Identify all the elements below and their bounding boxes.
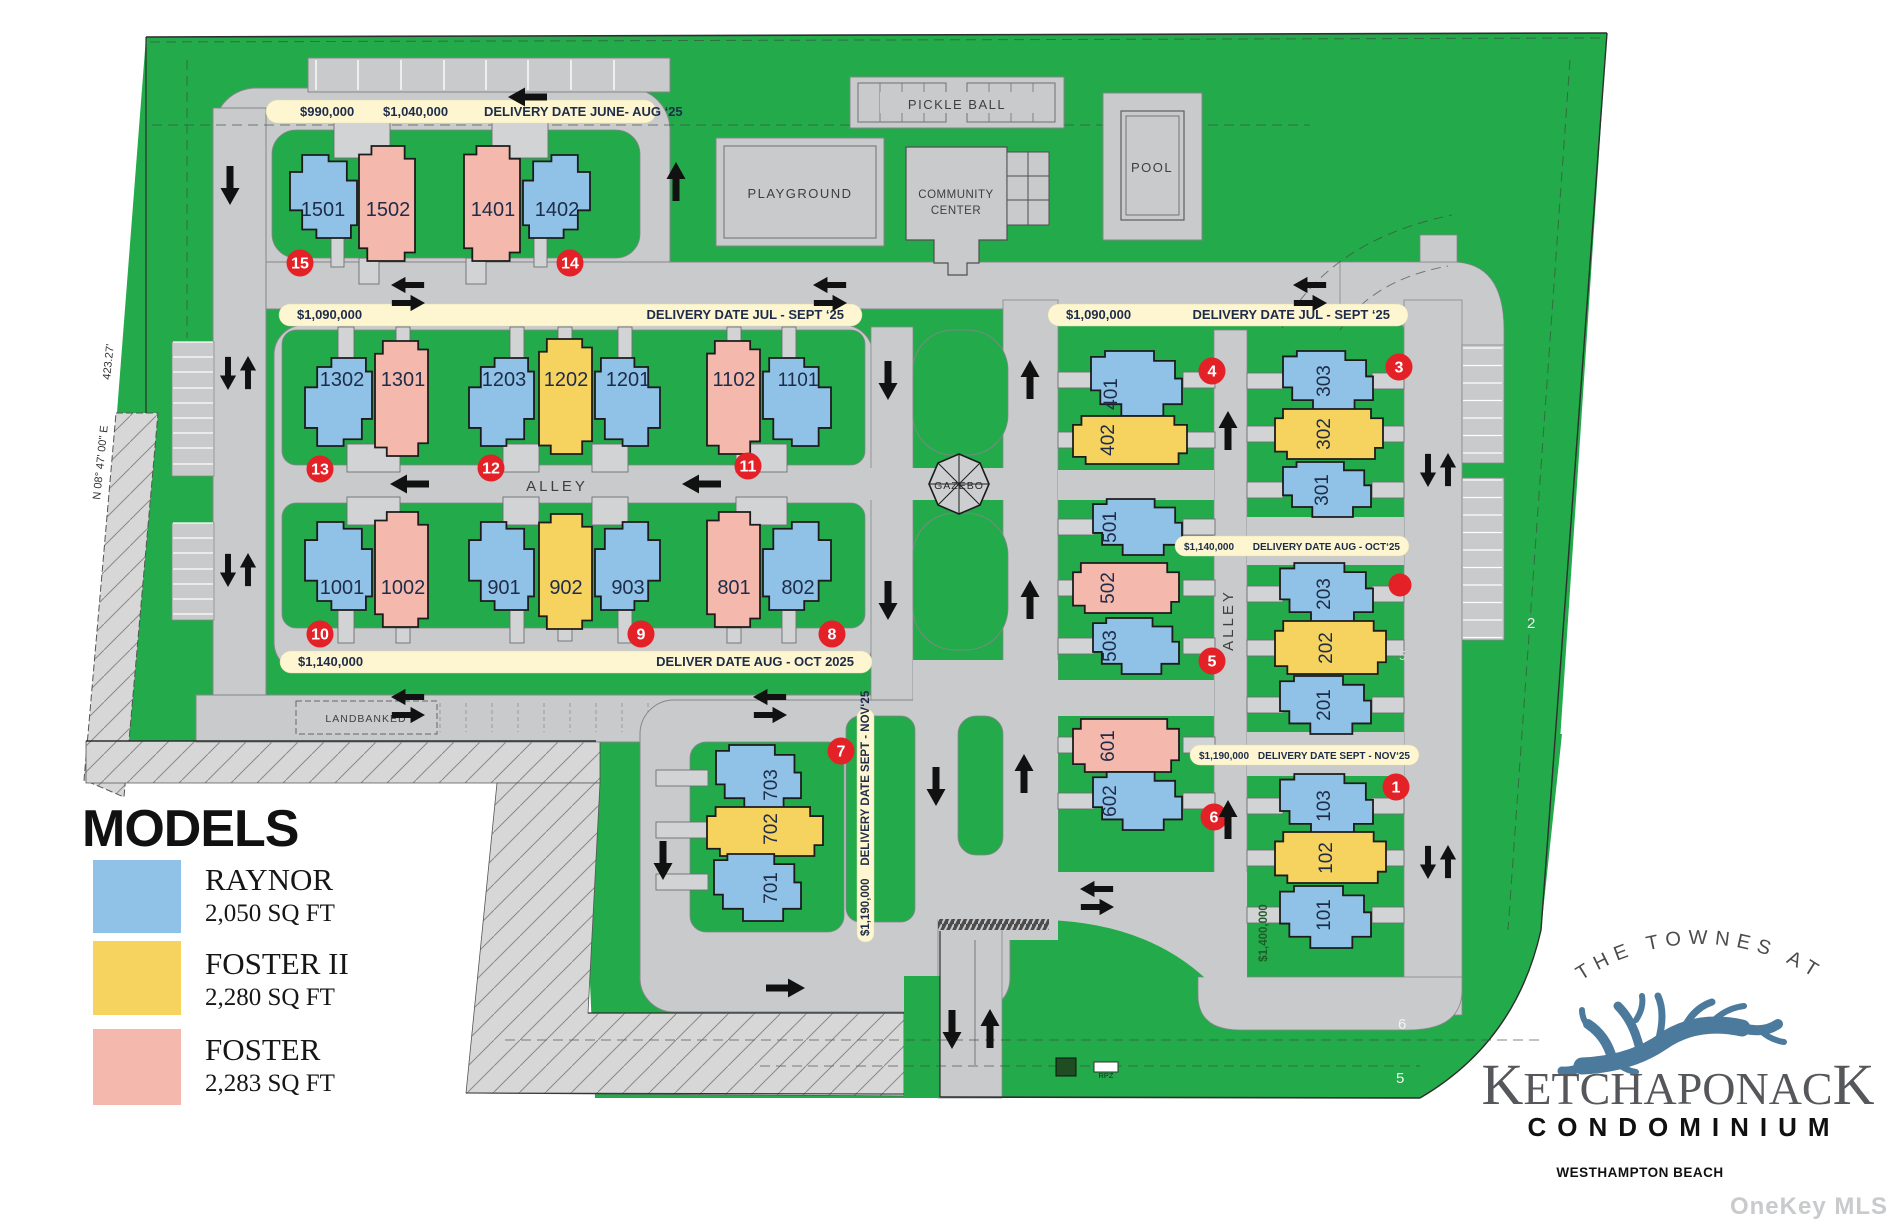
svg-text:RAYNOR: RAYNOR <box>205 862 333 897</box>
svg-text:POOL: POOL <box>1131 160 1173 175</box>
svg-text:302: 302 <box>1314 418 1335 450</box>
svg-text:WESTHAMPTON BEACH: WESTHAMPTON BEACH <box>1556 1165 1723 1180</box>
svg-text:9: 9 <box>637 627 646 644</box>
svg-text:502: 502 <box>1098 572 1119 604</box>
svg-text:$1,090,000: $1,090,000 <box>1066 307 1131 322</box>
svg-text:1202: 1202 <box>544 369 589 391</box>
svg-text:2,050 SQ FT: 2,050 SQ FT <box>205 900 335 927</box>
svg-text:1401: 1401 <box>471 199 516 221</box>
svg-text:$1,140,000: $1,140,000 <box>298 654 363 669</box>
svg-text:1001: 1001 <box>320 577 365 599</box>
svg-text:5: 5 <box>1396 1070 1404 1087</box>
svg-text:1301: 1301 <box>381 369 426 391</box>
svg-text:2: 2 <box>1527 615 1535 632</box>
svg-text:1402: 1402 <box>535 199 580 221</box>
svg-text:1501: 1501 <box>301 199 346 221</box>
svg-text:FOSTER II: FOSTER II <box>205 946 349 981</box>
svg-text:1203: 1203 <box>482 369 527 391</box>
svg-text:103: 103 <box>1314 790 1335 822</box>
svg-text:1101: 1101 <box>778 370 819 391</box>
svg-text:102: 102 <box>1316 842 1337 874</box>
svg-text:13: 13 <box>311 462 329 479</box>
svg-text:5: 5 <box>1208 654 1217 671</box>
svg-text:801: 801 <box>717 577 750 599</box>
svg-text:ALLEY: ALLEY <box>526 478 588 495</box>
svg-text:$1,140,000: $1,140,000 <box>1184 542 1234 553</box>
svg-text:1201: 1201 <box>606 369 651 391</box>
svg-text:OneKey MLS: OneKey MLS <box>1730 1193 1888 1220</box>
svg-text:601: 601 <box>1098 730 1119 762</box>
svg-text:901: 901 <box>487 577 520 599</box>
svg-text:1: 1 <box>1392 780 1401 797</box>
svg-text:401: 401 <box>1101 378 1122 410</box>
svg-text:701: 701 <box>761 872 782 904</box>
svg-text:303: 303 <box>1314 365 1335 397</box>
svg-text:6: 6 <box>1210 810 1219 827</box>
svg-text:6: 6 <box>1398 1016 1406 1033</box>
svg-text:202: 202 <box>1316 632 1337 664</box>
svg-text:4: 4 <box>1208 364 1217 381</box>
svg-text:902: 902 <box>549 577 582 599</box>
svg-text:CENTER: CENTER <box>931 205 981 217</box>
svg-text:1302: 1302 <box>320 369 365 391</box>
svg-text:DELIVER DATE AUG - OCT 2025: DELIVER DATE AUG - OCT 2025 <box>656 654 854 669</box>
svg-text:7: 7 <box>837 744 846 761</box>
svg-text:703: 703 <box>761 769 782 801</box>
svg-text:$1,090,000: $1,090,000 <box>297 307 362 322</box>
svg-text:PICKLE BALL: PICKLE BALL <box>908 97 1006 112</box>
svg-text:14: 14 <box>561 256 579 273</box>
svg-text:DELIVERY DATE AUG - OCT‘25: DELIVERY DATE AUG - OCT‘25 <box>1253 542 1401 553</box>
svg-text:501: 501 <box>1100 511 1121 543</box>
svg-text:$1,190,000: $1,190,000 <box>1199 751 1249 762</box>
svg-text:12: 12 <box>482 461 500 478</box>
svg-text:FOSTER: FOSTER <box>205 1032 321 1067</box>
svg-text:8: 8 <box>828 627 837 644</box>
svg-text:1102: 1102 <box>712 369 755 391</box>
svg-text:301: 301 <box>1312 474 1333 506</box>
svg-text:2,280 SQ FT: 2,280 SQ FT <box>205 984 335 1011</box>
svg-text:3: 3 <box>1395 360 1404 377</box>
svg-text:RPZ: RPZ <box>1099 1071 1114 1080</box>
svg-text:402: 402 <box>1098 424 1119 456</box>
svg-text:ALLEY: ALLEY <box>1220 589 1237 651</box>
svg-text:DELIVERY DATE JUNE- AUG ‘25: DELIVERY DATE JUNE- AUG ‘25 <box>484 104 683 119</box>
svg-text:DELIVERY DATE JUL - SEPT ‘25: DELIVERY DATE JUL - SEPT ‘25 <box>1193 307 1390 322</box>
svg-text:PLAYGROUND: PLAYGROUND <box>747 186 852 201</box>
svg-text:$1,400,000: $1,400,000 <box>1258 904 1270 962</box>
svg-text:10: 10 <box>311 627 329 644</box>
svg-text:203: 203 <box>1314 578 1335 610</box>
svg-text:$1,040,000: $1,040,000 <box>383 104 448 119</box>
svg-text:503: 503 <box>1100 630 1121 662</box>
svg-text:702: 702 <box>761 813 782 845</box>
svg-text:201: 201 <box>1314 689 1335 721</box>
svg-text:1002: 1002 <box>381 577 426 599</box>
svg-text:DELIVERY DATE SEPT - NOV‘25: DELIVERY DATE SEPT - NOV‘25 <box>1258 751 1411 762</box>
svg-text:DELIVERY DATE JUL - SEPT ‘25: DELIVERY DATE JUL - SEPT ‘25 <box>647 307 844 322</box>
svg-text:GAZEBO: GAZEBO <box>934 480 984 492</box>
svg-text:11: 11 <box>740 459 757 476</box>
svg-text:$1,190,000 DELIVERY DATE SE: $1,190,000 DELIVERY DATE SEPT - NOV‘25 <box>860 690 872 936</box>
svg-text:602: 602 <box>1100 785 1121 817</box>
svg-text:5: 5 <box>1399 648 1406 663</box>
svg-text:MODELS: MODELS <box>82 800 298 858</box>
svg-text:1502: 1502 <box>366 199 411 221</box>
svg-text:802: 802 <box>781 577 814 599</box>
svg-text:CONDOMINIUM: CONDOMINIUM <box>1527 1112 1840 1142</box>
svg-text:101: 101 <box>1314 899 1335 931</box>
svg-text:903: 903 <box>611 577 644 599</box>
svg-text:COMMUNITY: COMMUNITY <box>918 189 993 201</box>
svg-text:2,283 SQ FT: 2,283 SQ FT <box>205 1070 335 1097</box>
svg-text:$990,000: $990,000 <box>300 104 354 119</box>
svg-text:15: 15 <box>291 256 309 273</box>
